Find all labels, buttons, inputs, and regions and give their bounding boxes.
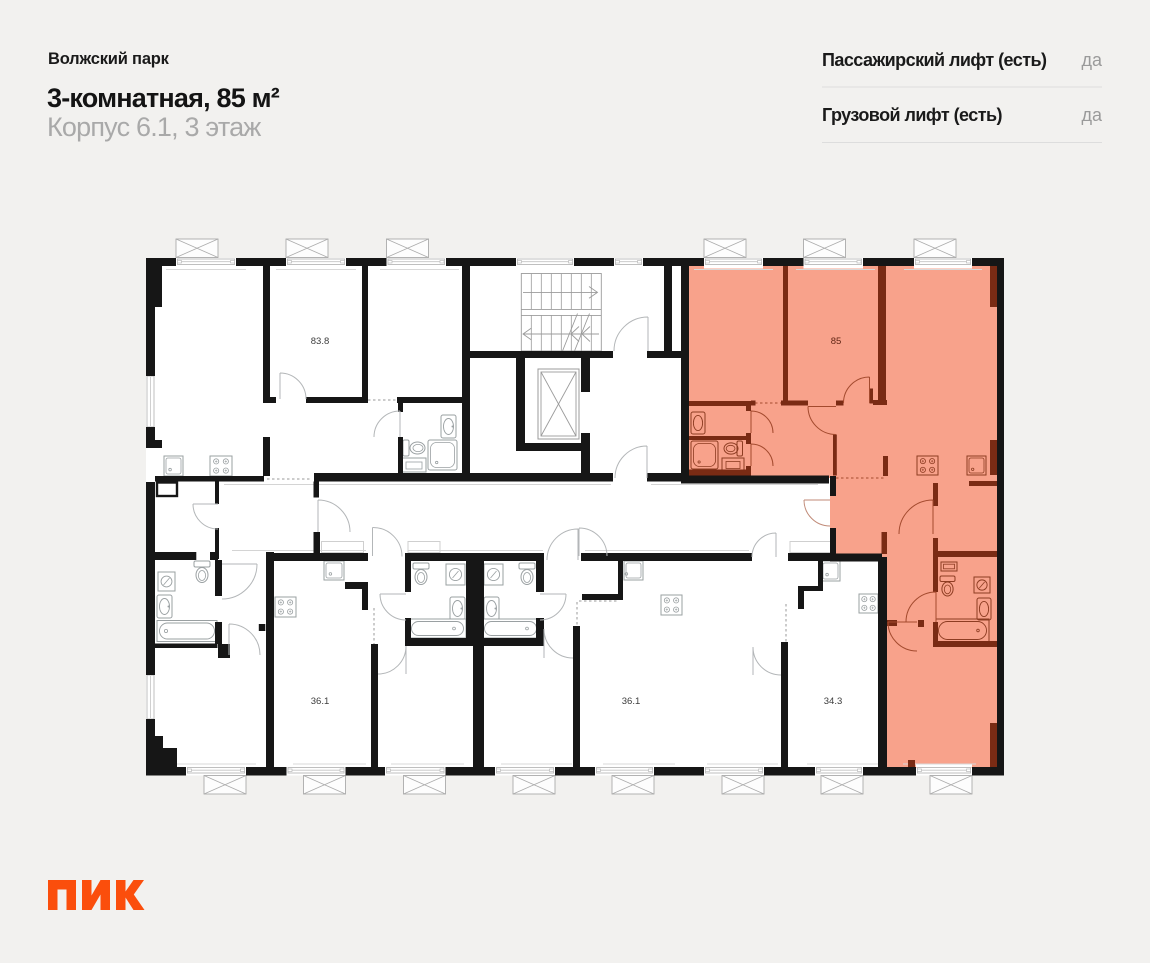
svg-text:да: да bbox=[1081, 105, 1103, 125]
svg-text:36.1: 36.1 bbox=[622, 696, 641, 707]
svg-text:Грузовой лифт (есть): Грузовой лифт (есть) bbox=[822, 105, 1002, 125]
svg-text:83.8: 83.8 bbox=[311, 336, 330, 347]
svg-text:85: 85 bbox=[831, 336, 842, 347]
svg-text:Волжский парк: Волжский парк bbox=[48, 50, 170, 68]
svg-text:да: да bbox=[1081, 50, 1103, 70]
svg-text:Корпус 6.1, 3 этаж: Корпус 6.1, 3 этаж bbox=[47, 112, 261, 142]
svg-text:36.1: 36.1 bbox=[311, 696, 330, 707]
svg-text:Пассажирский лифт (есть): Пассажирский лифт (есть) bbox=[822, 50, 1047, 70]
svg-text:3-комнатная, 85 м²: 3-комнатная, 85 м² bbox=[47, 83, 280, 113]
svg-text:34.3: 34.3 bbox=[824, 696, 843, 707]
